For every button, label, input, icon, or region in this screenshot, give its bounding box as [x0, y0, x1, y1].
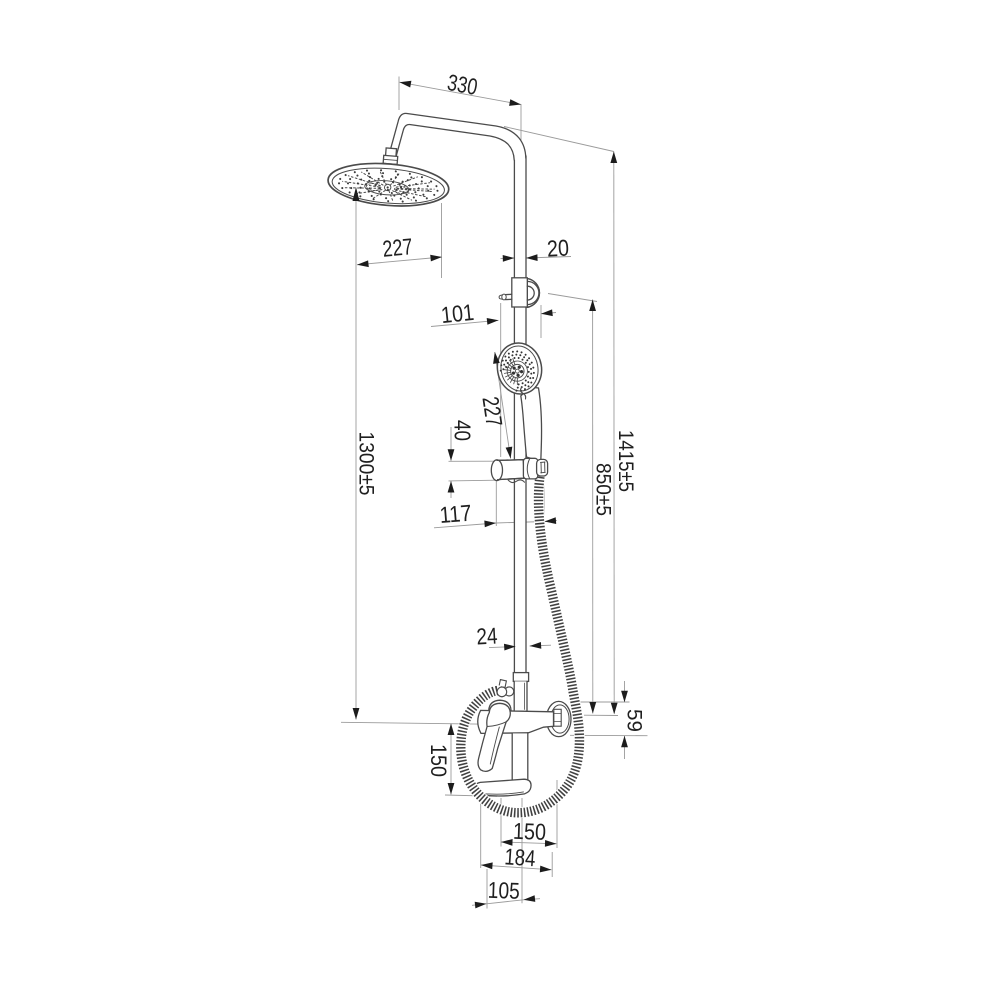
svg-text:40: 40	[450, 420, 476, 441]
svg-text:20: 20	[546, 234, 569, 261]
svg-text:330: 330	[445, 69, 479, 100]
svg-text:101: 101	[440, 299, 476, 328]
svg-text:105: 105	[487, 877, 520, 904]
svg-text:227: 227	[477, 395, 507, 428]
svg-text:227: 227	[381, 233, 413, 262]
svg-text:150: 150	[426, 744, 451, 777]
svg-text:184: 184	[504, 843, 537, 871]
svg-text:59: 59	[622, 709, 646, 732]
svg-text:24: 24	[476, 622, 498, 649]
svg-text:850±5: 850±5	[591, 463, 615, 516]
svg-text:1415±5: 1415±5	[614, 430, 638, 492]
svg-text:1300±5: 1300±5	[355, 432, 379, 496]
svg-text:117: 117	[439, 500, 473, 528]
svg-text:150: 150	[513, 818, 547, 845]
